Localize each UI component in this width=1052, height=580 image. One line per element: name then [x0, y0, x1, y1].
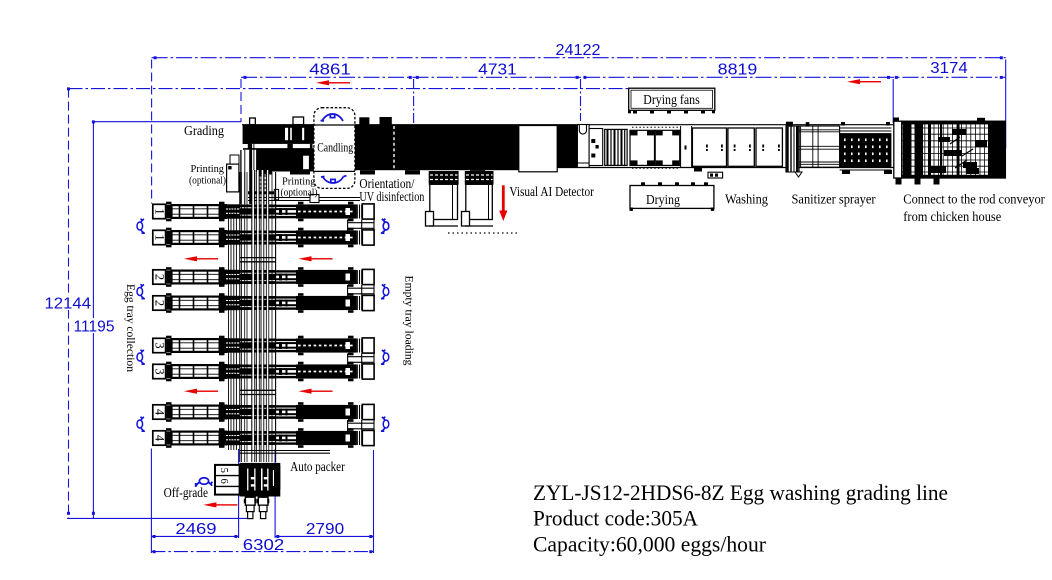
svg-text:4731: 4731 [478, 62, 517, 79]
svg-text:2: 2 [153, 274, 167, 280]
svg-text:12144: 12144 [45, 296, 92, 313]
svg-text:Sanitizer sprayer: Sanitizer sprayer [792, 192, 876, 207]
svg-text:3: 3 [153, 368, 167, 374]
svg-text:(optional): (optional) [281, 187, 318, 199]
svg-text:Capacity:60,000 eggs/hour: Capacity:60,000 eggs/hour [533, 531, 767, 556]
svg-text:3174: 3174 [930, 60, 968, 77]
svg-text:UV disinfection: UV disinfection [359, 190, 424, 205]
svg-text:1: 1 [153, 208, 167, 214]
svg-text:Product code:305A: Product code:305A [533, 506, 698, 531]
svg-text:Egg tray collection: Egg tray collection [124, 284, 138, 372]
svg-text:5: 5 [218, 468, 229, 473]
svg-text:Connect to the rod conveyor: Connect to the rod conveyor [903, 192, 1045, 207]
svg-text:3: 3 [153, 342, 167, 348]
svg-text:Printing: Printing [191, 163, 225, 175]
svg-text:4861: 4861 [309, 62, 351, 79]
svg-text:8819: 8819 [718, 62, 758, 79]
svg-text:Drying fans: Drying fans [643, 92, 700, 107]
svg-text:2790: 2790 [306, 521, 345, 538]
svg-text:6302: 6302 [243, 537, 284, 554]
svg-text:ZYL-JS12-2HDS6-8Z Egg washing: ZYL-JS12-2HDS6-8Z Egg washing grading li… [533, 480, 948, 505]
svg-text:2: 2 [153, 300, 167, 306]
svg-text:Grading: Grading [184, 124, 224, 139]
svg-text:(optional): (optional) [189, 175, 226, 187]
svg-text:24122: 24122 [556, 42, 601, 59]
svg-text:1: 1 [153, 234, 167, 240]
svg-text:Drying: Drying [646, 193, 680, 208]
svg-text:Visual AI Detector: Visual AI Detector [509, 185, 594, 200]
svg-text:Auto packer: Auto packer [290, 459, 345, 474]
svg-text:6: 6 [218, 478, 229, 483]
svg-text:Washing: Washing [725, 192, 768, 207]
svg-text:Candling: Candling [317, 141, 353, 155]
svg-text:4: 4 [153, 435, 167, 442]
svg-text:2469: 2469 [175, 521, 216, 538]
svg-text:4: 4 [153, 409, 167, 416]
svg-text:Empty tray loading: Empty tray loading [403, 276, 417, 366]
svg-text:Off-grade: Off-grade [164, 485, 208, 500]
svg-text:from chicken house: from chicken house [903, 210, 1001, 225]
svg-text:11195: 11195 [74, 319, 115, 336]
